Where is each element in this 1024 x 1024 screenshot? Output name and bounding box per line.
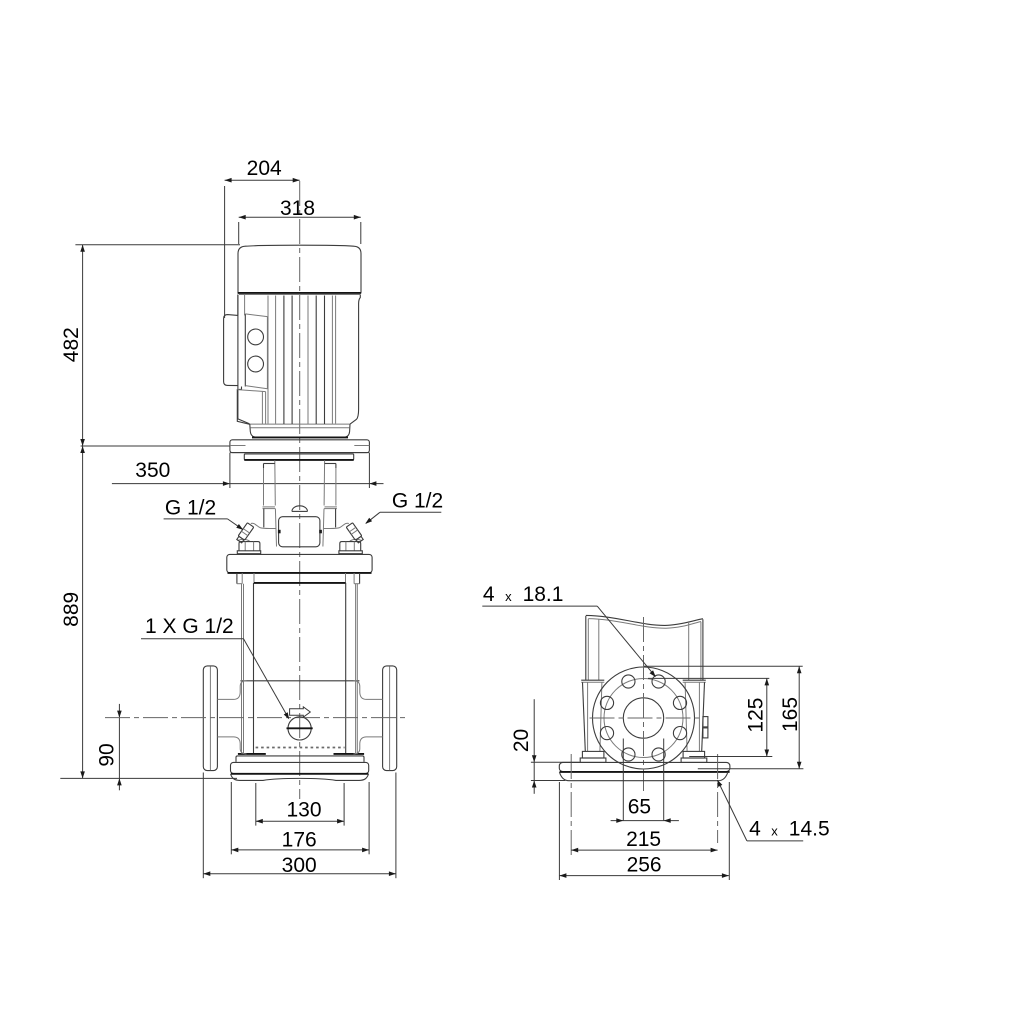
svg-text:125: 125 <box>745 698 768 733</box>
svg-text:300: 300 <box>282 854 317 877</box>
svg-text:215: 215 <box>626 828 661 851</box>
svg-text:165: 165 <box>779 697 802 732</box>
svg-text:65: 65 <box>628 796 651 819</box>
svg-text:1 X G 1/2: 1 X G 1/2 <box>145 615 234 638</box>
svg-text:482: 482 <box>60 327 83 362</box>
svg-text:889: 889 <box>60 592 83 627</box>
svg-text:90: 90 <box>96 743 119 766</box>
svg-text:256: 256 <box>627 854 662 877</box>
svg-text:130: 130 <box>286 799 321 822</box>
svg-text:G 1/2: G 1/2 <box>165 497 216 520</box>
svg-text:204: 204 <box>247 157 282 180</box>
svg-text:318: 318 <box>280 197 315 220</box>
svg-text:176: 176 <box>282 829 317 852</box>
svg-text:G 1/2: G 1/2 <box>392 490 443 513</box>
svg-text:20: 20 <box>510 729 533 752</box>
svg-text:350: 350 <box>135 459 170 482</box>
